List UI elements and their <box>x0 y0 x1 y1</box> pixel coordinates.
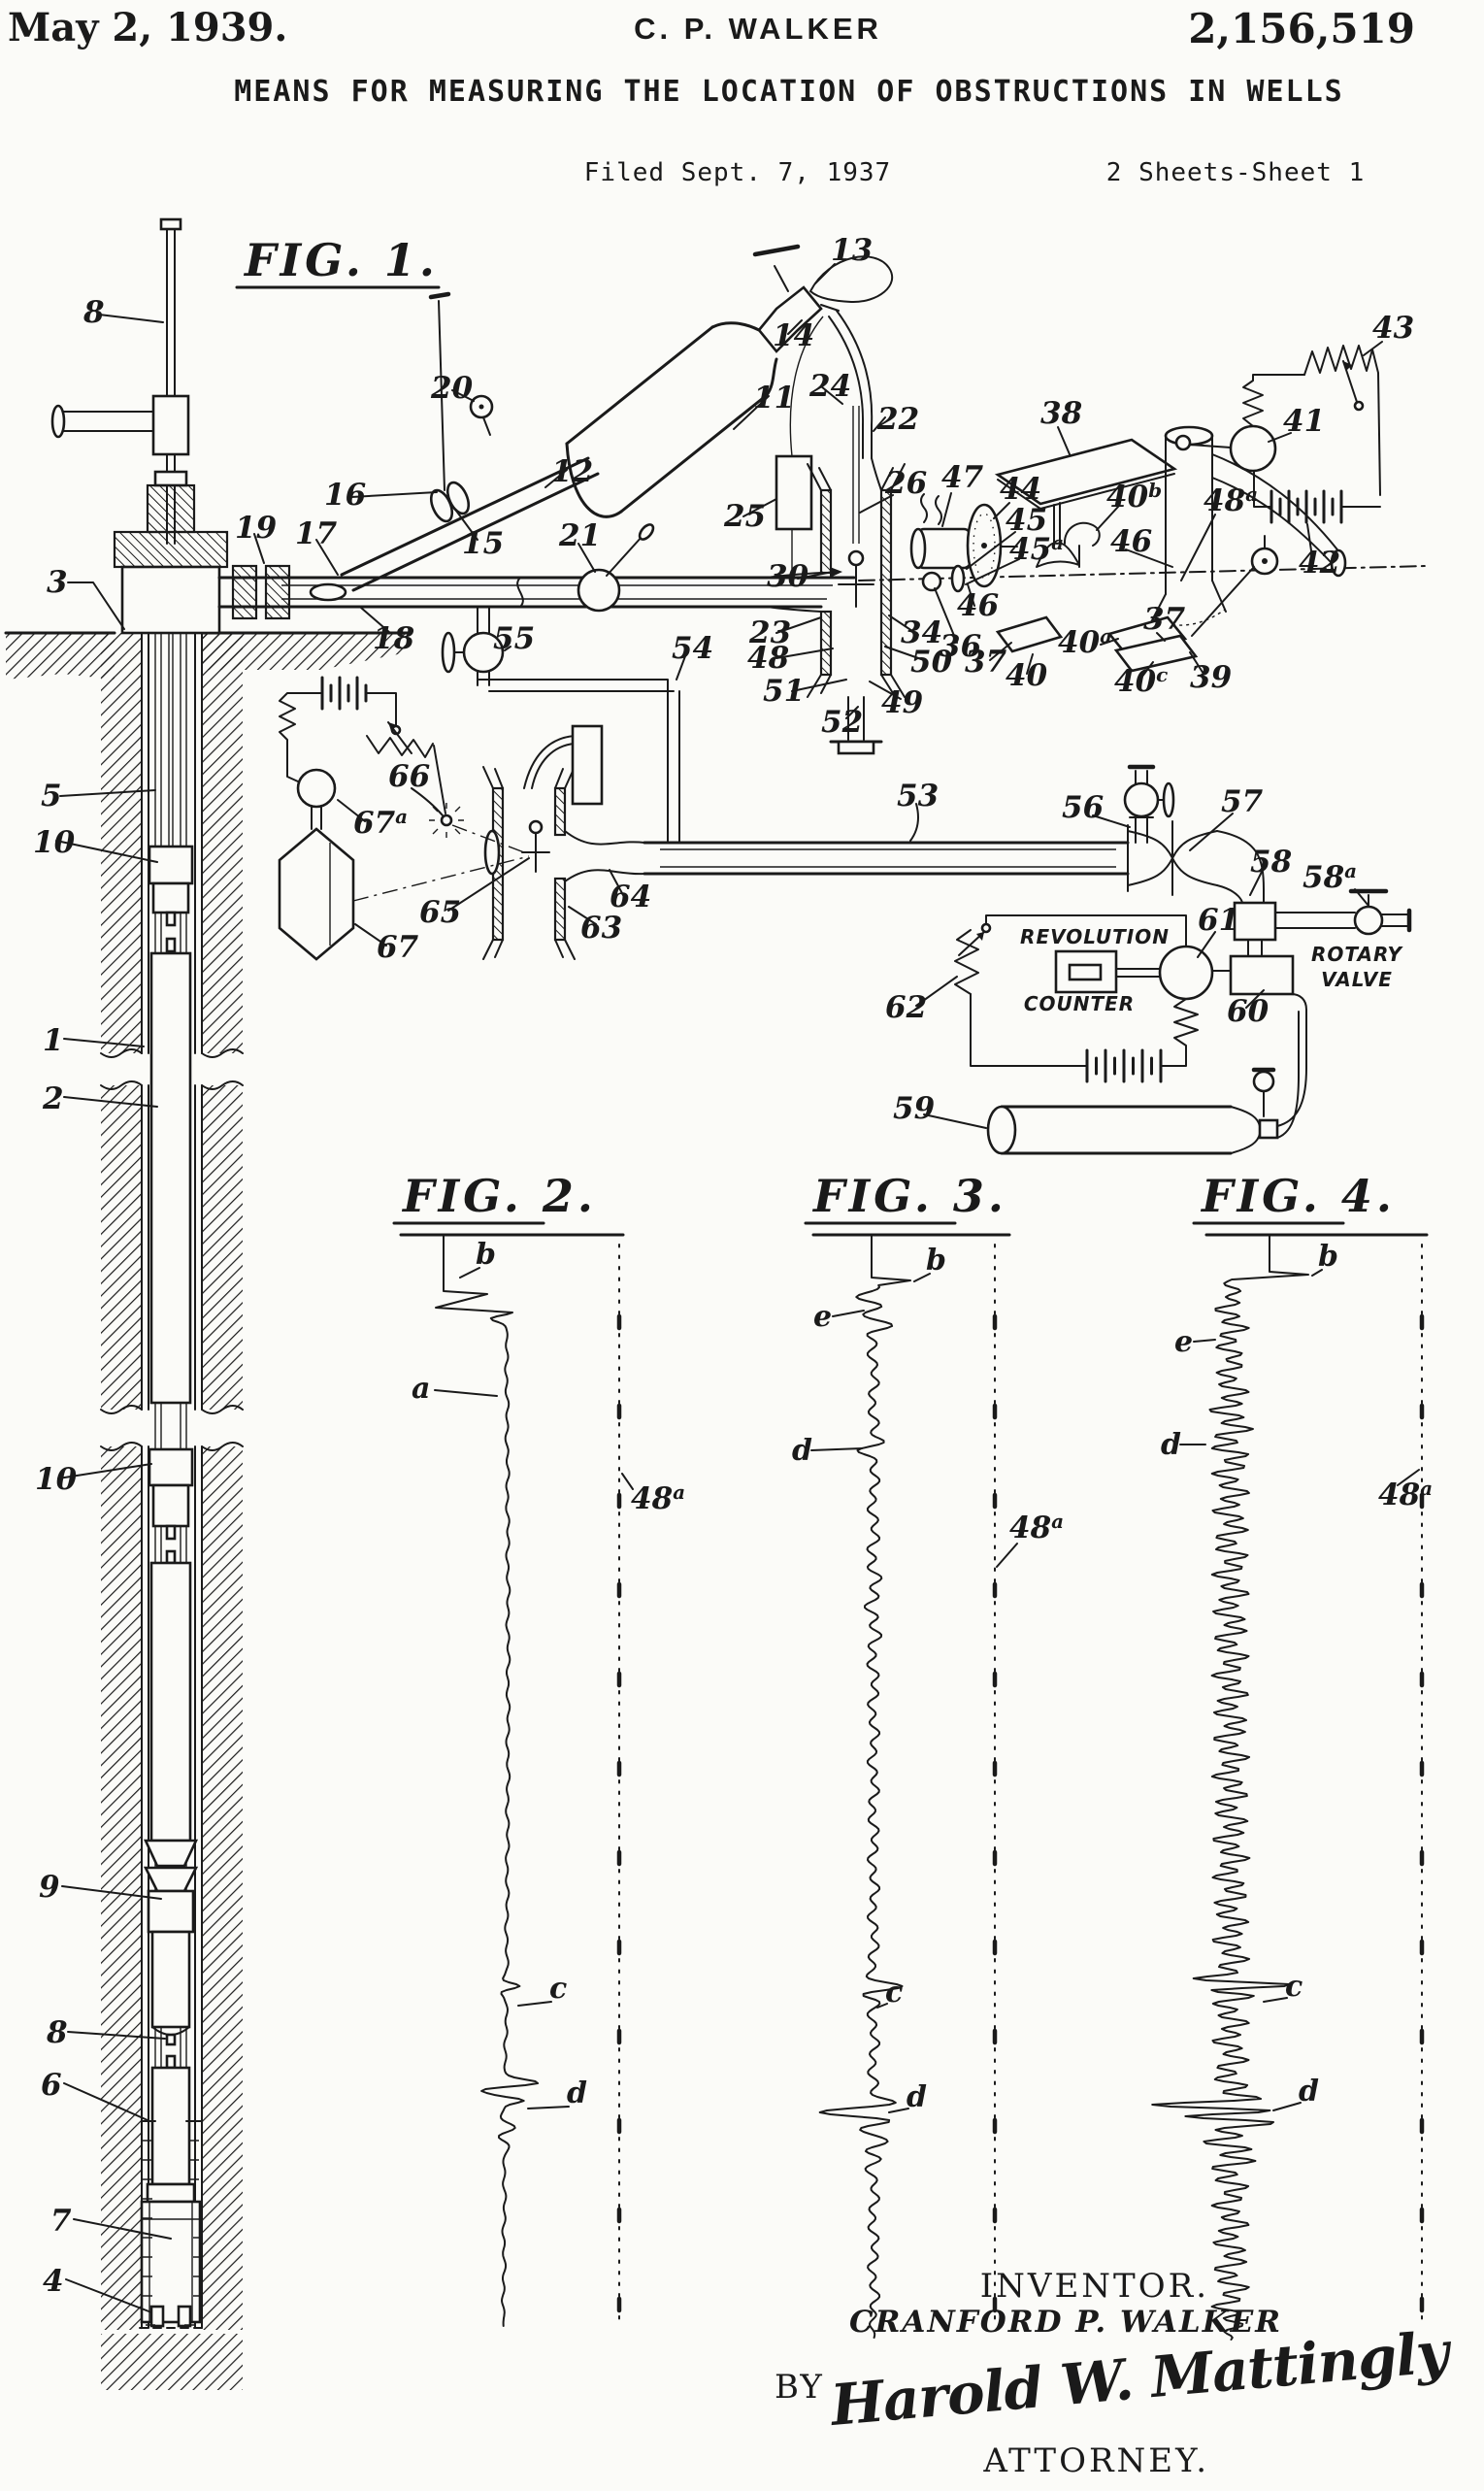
fig1-label-4: 4 <box>43 2264 64 2299</box>
fig2-label-48a: 48a <box>631 1480 685 1516</box>
fig1-label-37-left: 37 <box>965 645 1007 680</box>
fig1-label-65: 65 <box>419 895 461 930</box>
fig1-label-12: 12 <box>551 454 593 489</box>
fig1-label-41: 41 <box>1283 404 1325 439</box>
fig1-label-9: 9 <box>39 1870 60 1905</box>
fig1-label-64: 64 <box>610 880 651 914</box>
fig4-label-c: c <box>1285 1970 1303 2004</box>
fig1-label-62: 62 <box>885 990 927 1025</box>
fig1-label-24: 24 <box>808 369 851 404</box>
fig1-label-40: 40 <box>1006 658 1048 693</box>
fig1-label-16: 16 <box>324 478 366 513</box>
fig1-label-61: 61 <box>1198 903 1239 938</box>
fig3-label-e: e <box>813 1300 832 1334</box>
by-caption: BY <box>775 2368 824 2407</box>
header: May 2, 1939. C. P. WALKER 2,156,519 MEAN… <box>8 5 1415 187</box>
fig2-label-d: d <box>567 2076 587 2110</box>
fig1-label-57: 57 <box>1221 784 1264 819</box>
fig4: FIG. 4. b e d c d 48a <box>1152 1170 1433 2340</box>
fig3-label-48a: 48a <box>1009 1510 1064 1545</box>
fig1-label-43: 43 <box>1372 311 1414 346</box>
fig1-label-55: 55 <box>493 621 535 656</box>
fig1-label-20: 20 <box>430 371 474 406</box>
header-patent-number: 2,156,519 <box>1188 5 1415 52</box>
fig1-label-56: 56 <box>1062 790 1104 825</box>
header-date: May 2, 1939. <box>8 5 287 50</box>
fig2-trace <box>436 1235 538 2326</box>
header-author: C. P. WALKER <box>634 12 882 46</box>
fig3-title: FIG. 3. <box>811 1170 1007 1222</box>
fig1-label-2: 2 <box>42 1081 64 1116</box>
fig1-label-51: 51 <box>763 674 805 709</box>
fig3-letter-leaders <box>811 1274 1017 2112</box>
fig1-label-67: 67 <box>377 930 419 965</box>
fig1-label-38: 38 <box>1040 396 1082 431</box>
fig1-label-1: 1 <box>43 1023 64 1058</box>
fig1-label-59: 59 <box>893 1091 935 1126</box>
fig4-label-48a: 48a <box>1378 1477 1433 1512</box>
fig2-label-c: c <box>549 1972 567 2006</box>
fig1-label-22: 22 <box>876 402 919 437</box>
fig4-label-b: b <box>1318 1240 1338 1274</box>
fig1-label-10-lower: 10 <box>35 1462 78 1497</box>
revolution-counter-label-line2: COUNTER <box>1024 992 1135 1015</box>
fig1-label-52: 52 <box>821 705 863 740</box>
fig1: FIG. 1. <box>6 219 1427 2390</box>
fig1-label-46-lower: 46 <box>957 588 999 623</box>
fig1-label-6: 6 <box>41 2068 62 2103</box>
fig4-label-e: e <box>1174 1325 1193 1359</box>
fig1-label-26: 26 <box>884 466 927 501</box>
fig4-trace <box>1152 1235 1308 2340</box>
patent-drawing: May 2, 1939. C. P. WALKER 2,156,519 MEAN… <box>0 0 1484 2491</box>
fig1-label-17: 17 <box>295 516 338 551</box>
fig1-label-58: 58 <box>1250 845 1292 880</box>
fig1-label-48: 48 <box>747 641 789 676</box>
fig1-label-30: 30 <box>767 559 809 594</box>
line-53-assembly <box>644 767 1409 1153</box>
fig3-label-d: d <box>792 1434 812 1468</box>
wellhead <box>52 219 227 633</box>
fig1-label-47: 47 <box>941 460 984 495</box>
rotary-valve-label-line2: VALVE <box>1321 968 1393 991</box>
fig1-label-37-right: 37 <box>1143 602 1186 637</box>
fig3-label-d2: d <box>907 2080 927 2114</box>
fig3-label-c: c <box>885 1976 903 2009</box>
fig1-label-53: 53 <box>897 779 939 814</box>
fig1-label-7: 7 <box>50 2204 72 2239</box>
fig2-label-b: b <box>476 1238 496 1272</box>
fig1-label-46-upper: 46 <box>1110 524 1152 559</box>
fig3-label-b: b <box>926 1244 946 1278</box>
rotary-valve-label-line1: ROTARY <box>1311 943 1404 966</box>
fig1-label-63: 63 <box>580 911 622 946</box>
fig2-label-a: a <box>412 1372 430 1406</box>
timing-ticks <box>619 1316 1422 2310</box>
fig4-label-d2: d <box>1299 2075 1319 2109</box>
attorney-caption: ATTORNEY. <box>982 2441 1209 2480</box>
inventor-caption: INVENTOR. <box>980 2267 1209 2306</box>
fig1-label-44: 44 <box>1000 472 1041 507</box>
fig1-label-25: 25 <box>723 499 766 534</box>
fig1-label-11: 11 <box>753 381 795 415</box>
label-30-arrowhead <box>830 567 842 578</box>
surface-pipe <box>219 294 854 843</box>
fig2-title: FIG. 2. <box>401 1170 597 1222</box>
fig2-letter-leaders <box>435 1268 633 2109</box>
fig4-title: FIG. 4. <box>1200 1170 1396 1222</box>
header-sheet: 2 Sheets-Sheet 1 <box>1106 158 1365 187</box>
fig1-label-54: 54 <box>672 631 713 666</box>
fig3: FIG. 3. b e d c d 48a <box>792 1170 1064 2338</box>
header-filed: Filed Sept. 7, 1937 <box>584 158 891 187</box>
fig1-label-40b: 40b <box>1106 479 1162 515</box>
fig1-label-15: 15 <box>462 526 504 561</box>
fig1-label-8: 8 <box>82 295 105 330</box>
fig1-label-5: 5 <box>41 779 62 814</box>
fig1-label-58a: 58a <box>1303 859 1357 895</box>
fig1-label-66: 66 <box>388 759 430 794</box>
fig1-title: FIG. 1. <box>243 234 439 286</box>
revolution-counter-label-line1: REVOLUTION <box>1020 925 1170 948</box>
fig3-trace <box>820 1235 910 2338</box>
fig1-label-19: 19 <box>235 511 277 546</box>
fig1-label-40a: 40a <box>1058 624 1112 660</box>
fig1-label-49: 49 <box>881 685 923 720</box>
fig4-label-d: d <box>1161 1428 1181 1462</box>
fig1-label-60: 60 <box>1227 994 1270 1029</box>
fig1-label-13: 13 <box>831 233 873 268</box>
header-title: MEANS FOR MEASURING THE LOCATION OF OBST… <box>234 75 1344 109</box>
fig1-label-10-upper: 10 <box>33 825 76 860</box>
fig1-label-3: 3 <box>47 565 68 600</box>
inventor-name: CRANFORD P. WALKER <box>849 2305 1282 2340</box>
fig2: FIG. 2. b a c d 48a <box>394 1170 685 2326</box>
fig1-label-67a: 67a <box>353 805 408 841</box>
fig1-label-40c: 40c <box>1114 663 1168 699</box>
fig1-label-39: 39 <box>1190 660 1232 695</box>
fig1-label-8-lower: 8 <box>46 2015 68 2050</box>
fig1-label-14: 14 <box>773 318 814 353</box>
fig1-label-21: 21 <box>558 518 601 553</box>
patent-sheet: May 2, 1939. C. P. WALKER 2,156,519 MEAN… <box>0 0 1484 2491</box>
fig1-label-42: 42 <box>1299 546 1340 581</box>
fig1-label-50: 50 <box>910 645 953 680</box>
fig1-label-48a: 48a <box>1204 482 1258 518</box>
fig1-label-18: 18 <box>373 621 414 656</box>
